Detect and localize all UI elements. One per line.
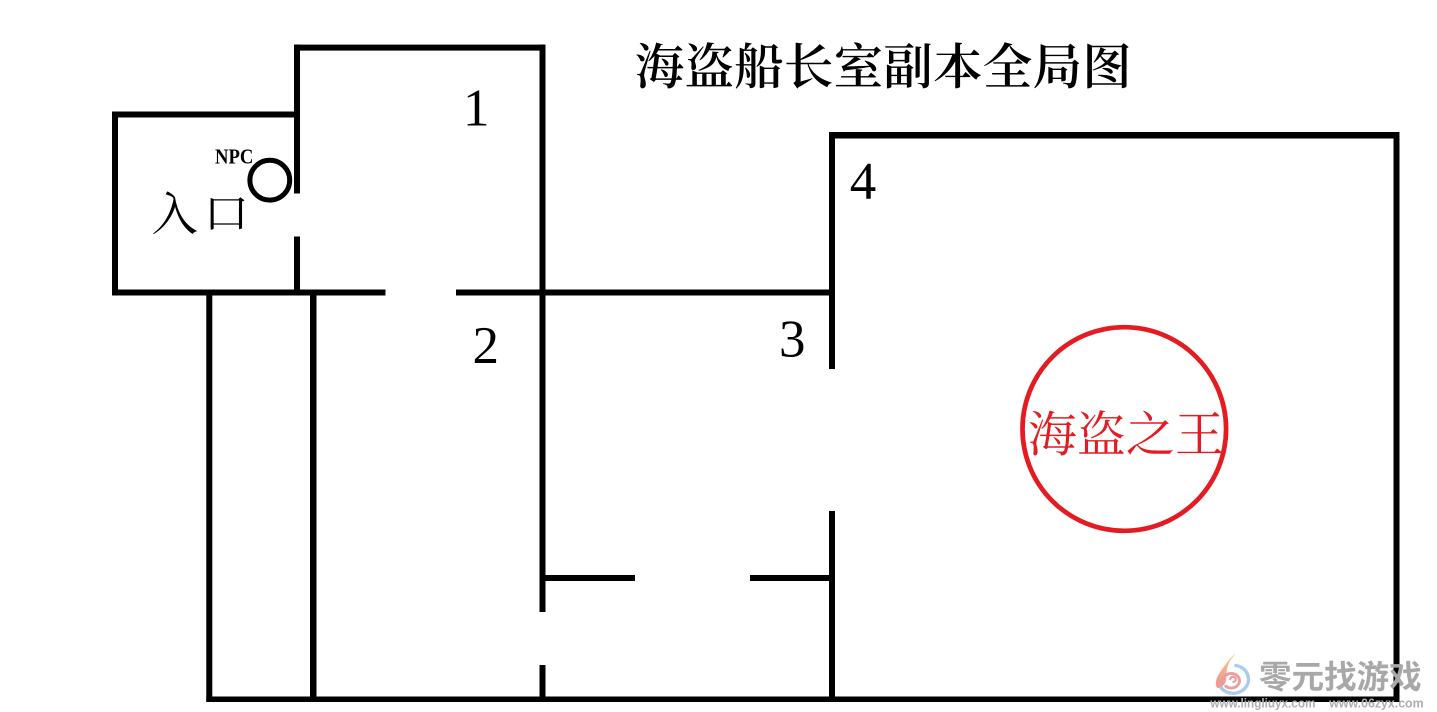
svg-text:1: 1: [463, 80, 490, 138]
svg-text:2: 2: [472, 317, 499, 375]
svg-text:www.lingliuyx.com: www.lingliuyx.com: [1209, 696, 1315, 711]
svg-text:3: 3: [779, 311, 806, 369]
svg-text:4: 4: [850, 153, 877, 211]
svg-text:NPC: NPC: [215, 144, 253, 168]
svg-text:www.06zyx.com: www.06zyx.com: [1328, 696, 1423, 711]
